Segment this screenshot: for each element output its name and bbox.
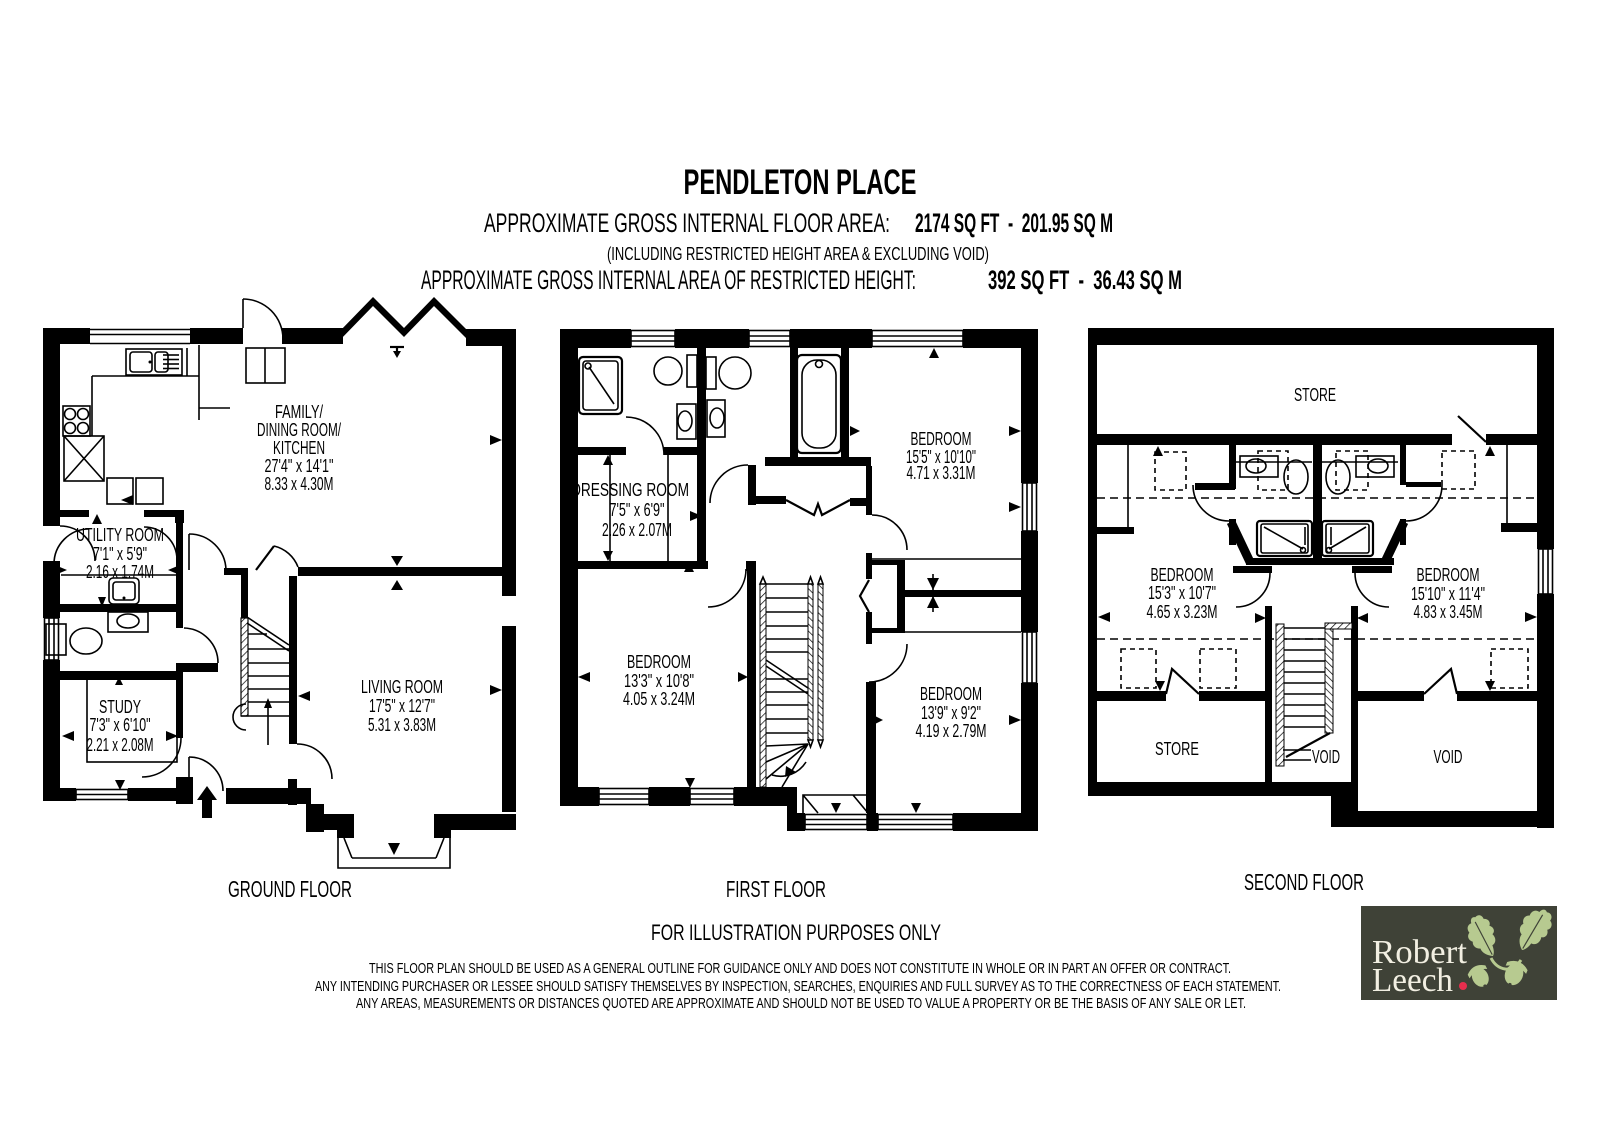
- svg-text:BEDROOM: BEDROOM: [1417, 565, 1480, 585]
- svg-text:APPROXIMATE GROSS INTERNAL ARE: APPROXIMATE GROSS INTERNAL AREA OF RESTR…: [421, 265, 916, 295]
- svg-text:FIRST FLOOR: FIRST FLOOR: [726, 876, 826, 902]
- svg-text:STUDY: STUDY: [99, 697, 141, 717]
- svg-text:FAMILY/: FAMILY/: [275, 402, 323, 422]
- svg-text:APPROXIMATE GROSS INTERNAL FLO: APPROXIMATE GROSS INTERNAL FLOOR AREA:: [484, 208, 890, 238]
- svg-text:13'9" x 9'2": 13'9" x 9'2": [921, 703, 981, 723]
- svg-text:4.83 x 3.45M: 4.83 x 3.45M: [1414, 602, 1483, 622]
- svg-text:17'5" x 12'7": 17'5" x 12'7": [369, 696, 435, 716]
- svg-text:VOID: VOID: [1434, 747, 1463, 767]
- svg-text:2.21 x 2.08M: 2.21 x 2.08M: [87, 735, 154, 755]
- svg-text:27'4" x 14'1": 27'4" x 14'1": [265, 456, 334, 476]
- svg-text:2174 SQ FT - 201.95 SQ M: 2174 SQ FT - 201.95 SQ M: [915, 208, 1113, 238]
- svg-text:8.33 x 4.30M: 8.33 x 4.30M: [265, 474, 334, 494]
- svg-text:PENDLETON PLACE: PENDLETON PLACE: [684, 163, 917, 202]
- svg-text:15'10" x 11'4": 15'10" x 11'4": [1411, 584, 1485, 604]
- svg-text:ANY AREAS, MEASUREMENTS OR DIS: ANY AREAS, MEASUREMENTS OR DISTANCES QUO…: [356, 995, 1246, 1012]
- svg-text:BEDROOM: BEDROOM: [920, 684, 982, 704]
- svg-text:4.65 x 3.23M: 4.65 x 3.23M: [1147, 602, 1218, 622]
- svg-text:BEDROOM: BEDROOM: [1151, 565, 1214, 585]
- svg-text:UTILITY ROOM: UTILITY ROOM: [76, 525, 164, 545]
- svg-text:2.26 x 2.07M: 2.26 x 2.07M: [602, 520, 672, 540]
- svg-text:ANY INTENDING PURCHASER OR LES: ANY INTENDING PURCHASER OR LESSEE SHOULD…: [315, 978, 1281, 995]
- svg-text:KITCHEN: KITCHEN: [273, 438, 325, 458]
- svg-text:SECOND FLOOR: SECOND FLOOR: [1244, 869, 1364, 895]
- svg-text:FOR ILLUSTRATION PURPOSES ONLY: FOR ILLUSTRATION PURPOSES ONLY: [651, 920, 941, 945]
- svg-text:7'1" x 5'9": 7'1" x 5'9": [93, 544, 147, 564]
- svg-text:LIVING ROOM: LIVING ROOM: [361, 677, 443, 697]
- svg-text:BEDROOM: BEDROOM: [911, 429, 972, 449]
- svg-text:392 SQ FT - 36.43 SQ M: 392 SQ FT - 36.43 SQ M: [988, 265, 1182, 295]
- svg-text:5.31 x 3.83M: 5.31 x 3.83M: [368, 715, 436, 735]
- svg-text:BEDROOM: BEDROOM: [627, 652, 691, 672]
- svg-text:4.05 x 3.24M: 4.05 x 3.24M: [623, 689, 695, 709]
- svg-text:STORE: STORE: [1155, 739, 1199, 759]
- svg-text:THIS FLOOR PLAN SHOULD BE USED: THIS FLOOR PLAN SHOULD BE USED AS A GENE…: [369, 960, 1231, 977]
- svg-text:DINING ROOM/: DINING ROOM/: [257, 420, 341, 440]
- svg-text:4.19 x 2.79M: 4.19 x 2.79M: [916, 721, 987, 741]
- svg-text:7'5" x 6'9": 7'5" x 6'9": [610, 500, 665, 520]
- svg-text:7'3" x 6'10": 7'3" x 6'10": [90, 715, 151, 735]
- svg-text:2.16 x 1.74M: 2.16 x 1.74M: [86, 562, 154, 582]
- svg-text:(INCLUDING RESTRICTED HEIGHT A: (INCLUDING RESTRICTED HEIGHT AREA & EXCL…: [607, 243, 989, 264]
- svg-text:VOID: VOID: [1312, 747, 1340, 767]
- svg-text:4.71 x 3.31M: 4.71 x 3.31M: [907, 463, 976, 483]
- svg-text:13'3" x 10'8": 13'3" x 10'8": [624, 671, 694, 691]
- svg-text:15'3" x 10'7": 15'3" x 10'7": [1148, 583, 1216, 603]
- svg-text:Leech: Leech: [1372, 962, 1453, 999]
- svg-text:DRESSING ROOM: DRESSING ROOM: [571, 480, 689, 500]
- svg-text:STORE: STORE: [1294, 385, 1336, 405]
- svg-text:GROUND FLOOR: GROUND FLOOR: [228, 876, 352, 902]
